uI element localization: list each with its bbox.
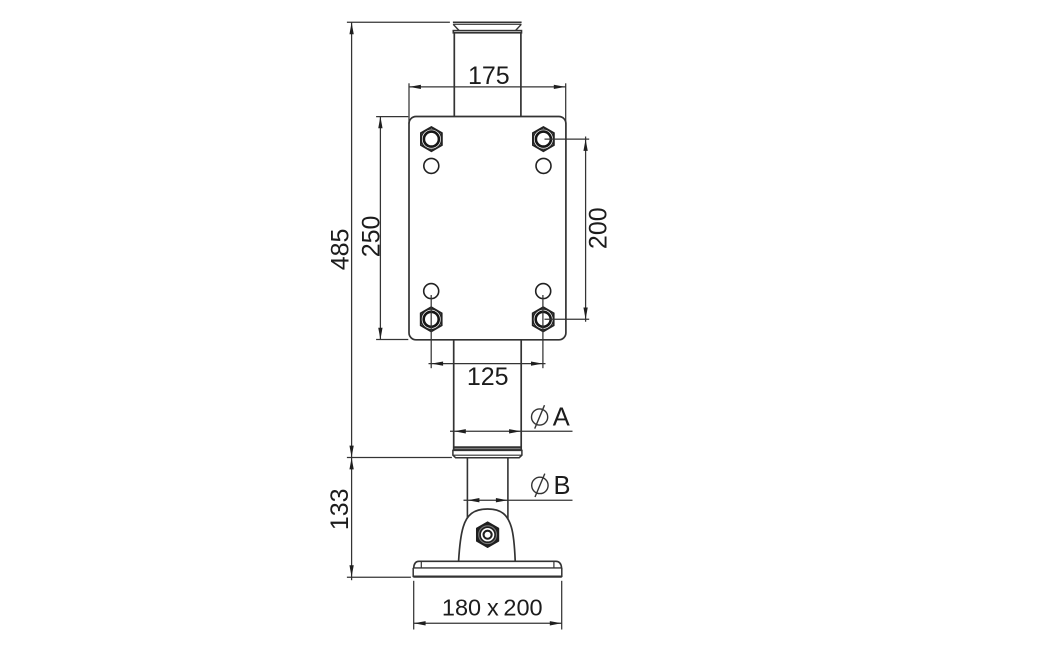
svg-text:485: 485: [327, 229, 355, 271]
svg-text:175: 175: [468, 62, 510, 90]
svg-text:250: 250: [358, 216, 386, 258]
svg-text:133: 133: [326, 488, 354, 530]
svg-text:200: 200: [585, 207, 613, 249]
svg-text:x: x: [487, 594, 499, 620]
svg-text:125: 125: [467, 363, 509, 391]
svg-text:180: 180: [442, 594, 481, 620]
svg-text:B: B: [553, 472, 570, 500]
svg-text:A: A: [553, 403, 570, 431]
svg-text:200: 200: [503, 594, 542, 620]
